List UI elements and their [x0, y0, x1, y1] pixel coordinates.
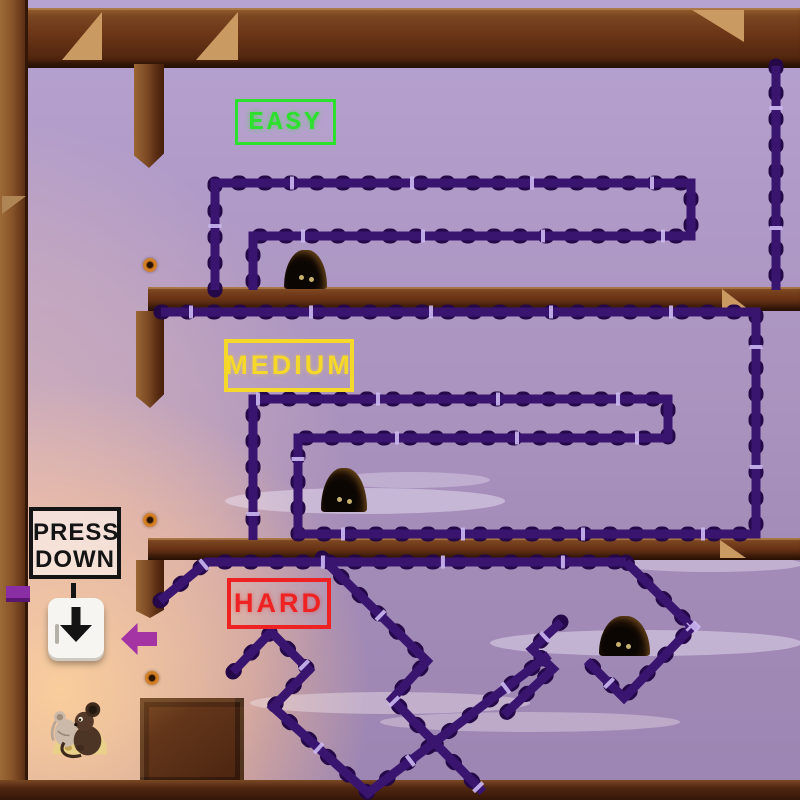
sign-line-2: DOWN: [33, 546, 117, 573]
down-arrow-icon: [48, 598, 104, 658]
level-label-medium: MEDIUM: [224, 339, 354, 392]
collectible-dot[interactable]: [143, 513, 157, 527]
level-label-easy: EASY: [235, 99, 336, 145]
hard-label-text: HARD: [234, 588, 324, 619]
down-key-button[interactable]: [48, 598, 104, 658]
easy-label-text: EASY: [248, 107, 322, 137]
player-mice[interactable]: [45, 698, 113, 766]
press-down-sign: PRESS DOWN: [29, 507, 121, 579]
collectible-dot[interactable]: [145, 671, 159, 685]
sign-line-1: PRESS: [33, 519, 117, 546]
medium-label-text: MEDIUM: [225, 350, 353, 381]
maze-walls: [0, 0, 800, 800]
game-canvas: EASY MEDIUM HARD PRESS DOWN: [0, 0, 800, 800]
collectible-dot[interactable]: [143, 258, 157, 272]
level-label-hard: HARD: [227, 578, 331, 629]
